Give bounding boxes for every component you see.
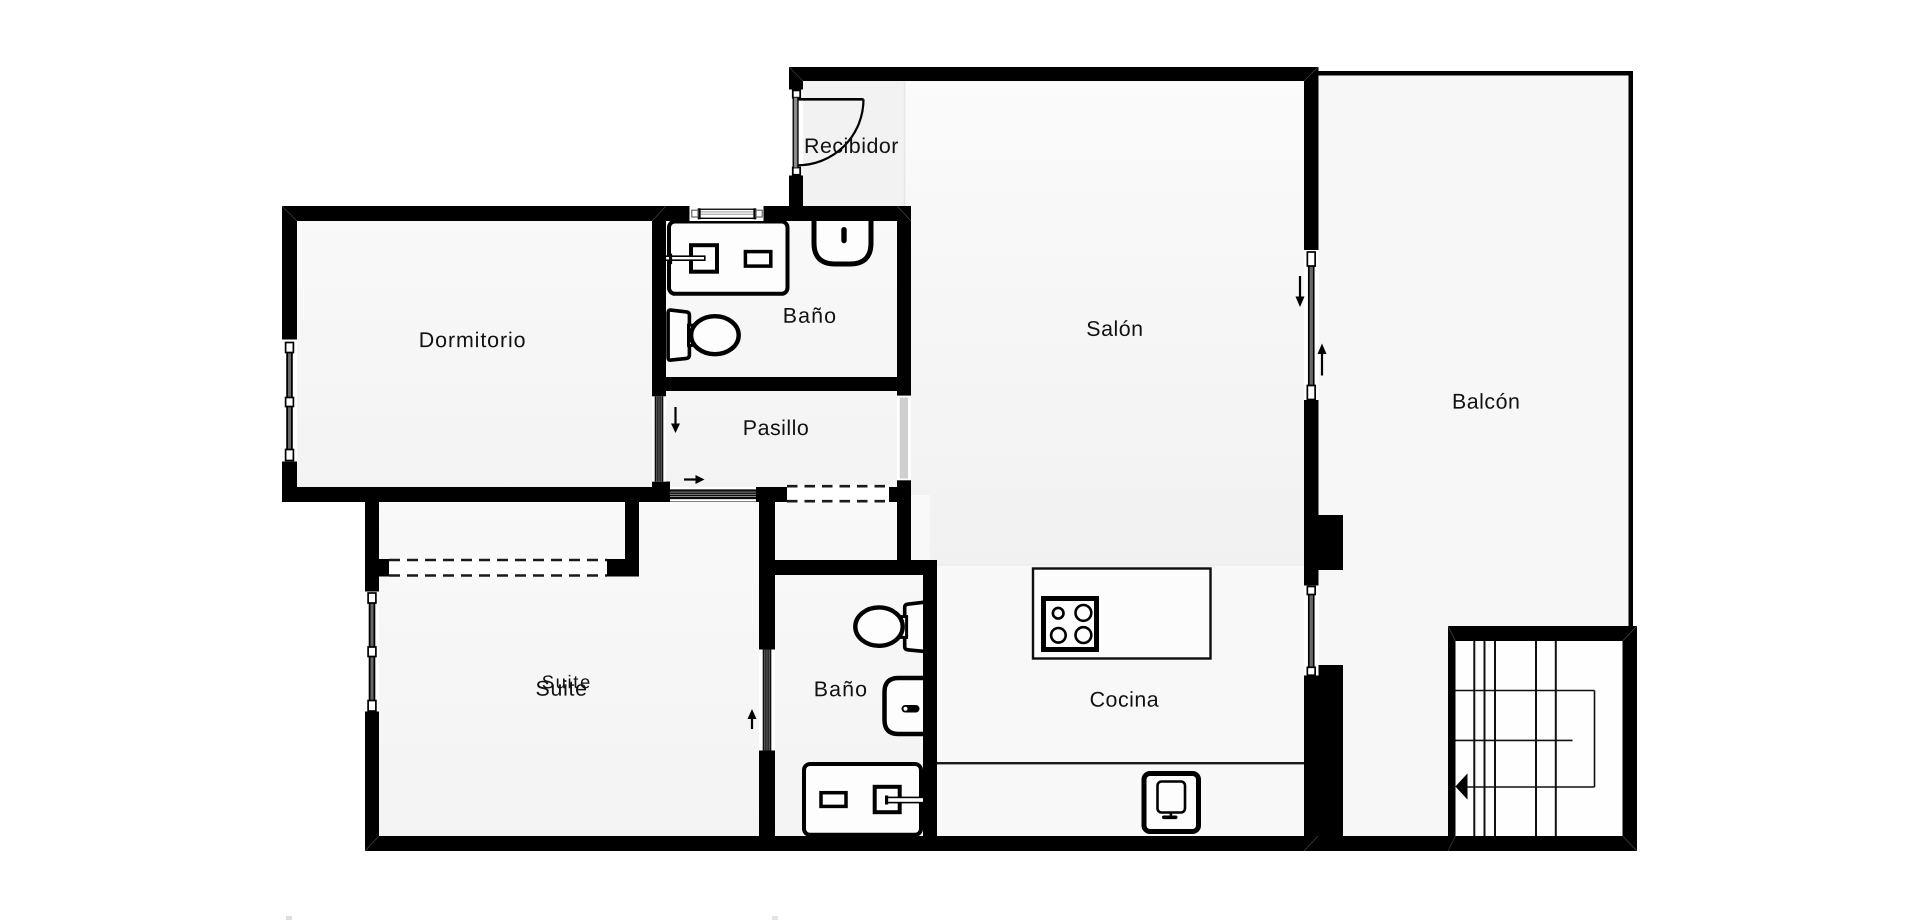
svg-text:Pasillo: Pasillo	[743, 416, 810, 440]
svg-text:Cocina: Cocina	[1090, 688, 1160, 712]
svg-text:Baño: Baño	[783, 304, 837, 328]
svg-text:Recibidor: Recibidor	[804, 134, 899, 158]
svg-text:Balcón: Balcón	[1452, 390, 1520, 414]
svg-text:Salón: Salón	[1086, 317, 1143, 341]
svg-text:Suite: Suite	[535, 677, 587, 701]
svg-text:Baño: Baño	[814, 677, 868, 701]
svg-text:Dormitorio: Dormitorio	[419, 328, 527, 352]
